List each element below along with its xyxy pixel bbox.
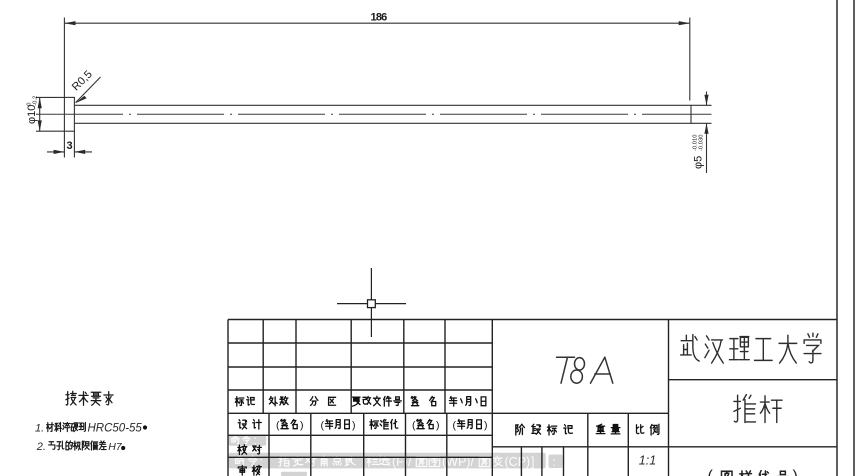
svg-text:2.: 2.	[36, 441, 46, 453]
svg-text:): )	[793, 468, 798, 476]
svg-text:]: ]	[531, 455, 534, 469]
svg-text:): )	[352, 420, 356, 432]
svg-text:186: 186	[371, 12, 388, 24]
svg-text:H7: H7	[108, 441, 123, 453]
svg-text:(: (	[321, 420, 325, 432]
svg-text:(: (	[276, 420, 280, 432]
svg-text:3: 3	[67, 140, 73, 152]
svg-text:1.: 1.	[35, 423, 44, 435]
svg-text:): )	[436, 420, 440, 432]
svg-text:(: (	[708, 468, 714, 476]
svg-text:(: (	[453, 420, 457, 432]
svg-text:(CP): (CP)	[505, 455, 531, 469]
svg-text:): )	[484, 420, 488, 432]
svg-text:φ10: φ10	[26, 105, 38, 124]
svg-text:-0.2: -0.2	[33, 96, 39, 106]
svg-text::: :	[553, 455, 556, 469]
svg-text:(: (	[412, 420, 416, 432]
svg-text:φ5: φ5	[693, 156, 705, 169]
svg-text:1:1: 1:1	[639, 454, 656, 468]
svg-text:HRC50-55: HRC50-55	[88, 423, 143, 435]
svg-text:-0.030: -0.030	[699, 135, 705, 151]
svg-text:): )	[300, 420, 304, 432]
